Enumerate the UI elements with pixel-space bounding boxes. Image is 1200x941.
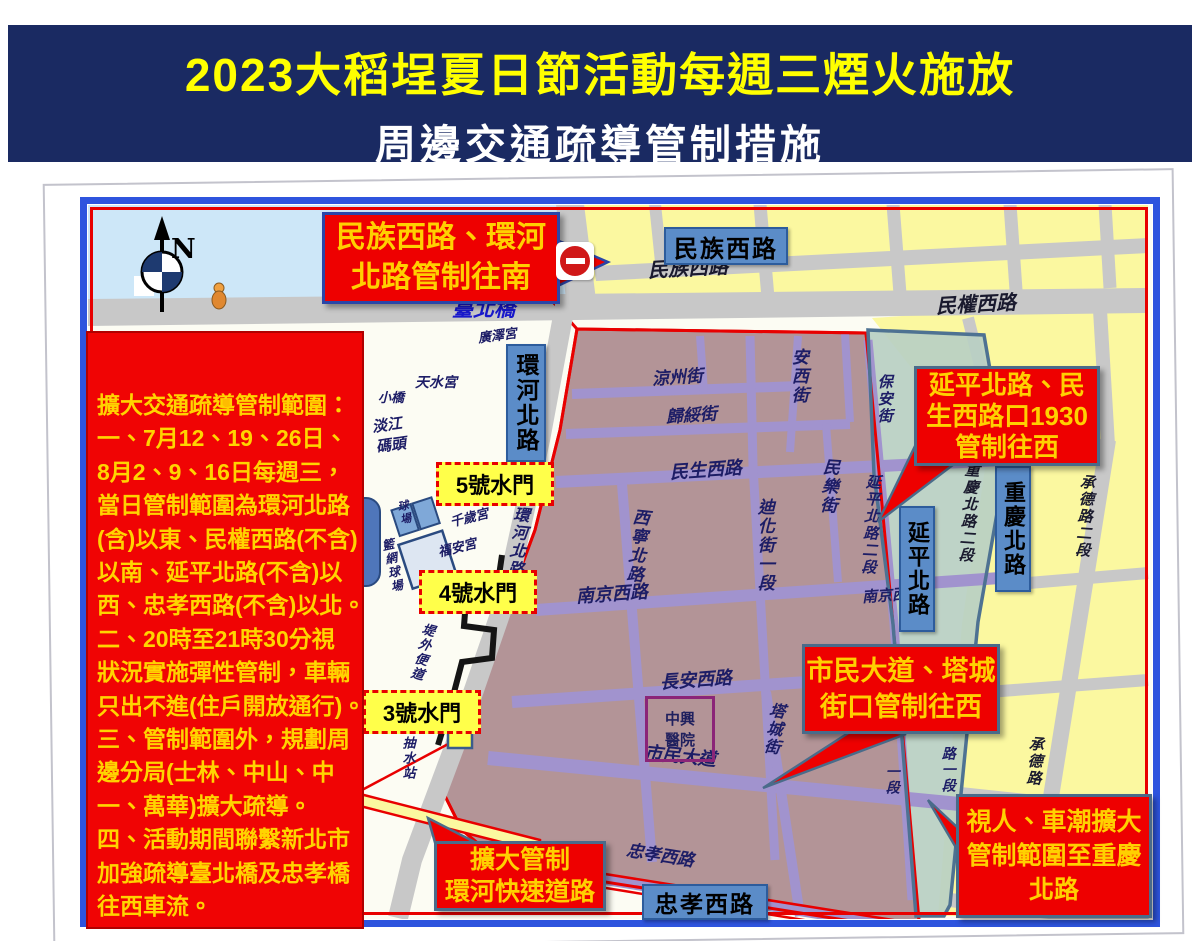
callout-chongqing-expansion: 視人、車潮擴大 管制範圍至重慶 北路 xyxy=(956,794,1152,918)
pointer-shimin-callout xyxy=(763,728,906,788)
callout-line: 市民大道、塔城 xyxy=(805,653,997,689)
callout-shimin-control: 市民大道、塔城 街口管制往西 xyxy=(802,644,1000,734)
header-banner: 2023大稻埕夏日節活動每週三煙火施放 周邊交通疏導管制措施 xyxy=(8,25,1192,162)
callout-line: 北路 xyxy=(959,873,1149,907)
callout-line: 管制往西 xyxy=(917,432,1097,463)
callout-line: 延平北路、民 xyxy=(917,370,1097,401)
callout-line: 街口管制往西 xyxy=(805,689,997,725)
callout-line: 擴大管制 xyxy=(437,844,603,876)
no-entry-sign-icon xyxy=(556,242,594,280)
callout-line: 視人、車潮擴大 xyxy=(959,805,1149,839)
poster-title: 2023大稻埕夏日節活動每週三煙火施放 xyxy=(8,39,1192,105)
callout-line: 民族西路、環河 xyxy=(325,218,557,258)
callout-line: 環河快速道路 xyxy=(437,876,603,908)
callout-yanping-control: 延平北路、民 生西路口1930 管制往西 xyxy=(914,366,1100,466)
callout-north-control: 民族西路、環河 北路管制往南 xyxy=(322,212,560,304)
callout-line: 生西路口1930 xyxy=(917,401,1097,432)
poster-subtitle: 周邊交通疏導管制措施 xyxy=(8,111,1192,171)
poster-canvas: 2023大稻埕夏日節活動每週三煙火施放 周邊交通疏導管制措施 xyxy=(0,0,1200,941)
callout-line: 管制範圍至重慶 xyxy=(959,839,1149,873)
callout-huanhe-expressway: 擴大管制 環河快速道路 xyxy=(434,841,606,911)
callout-line: 北路管制往南 xyxy=(325,258,557,298)
